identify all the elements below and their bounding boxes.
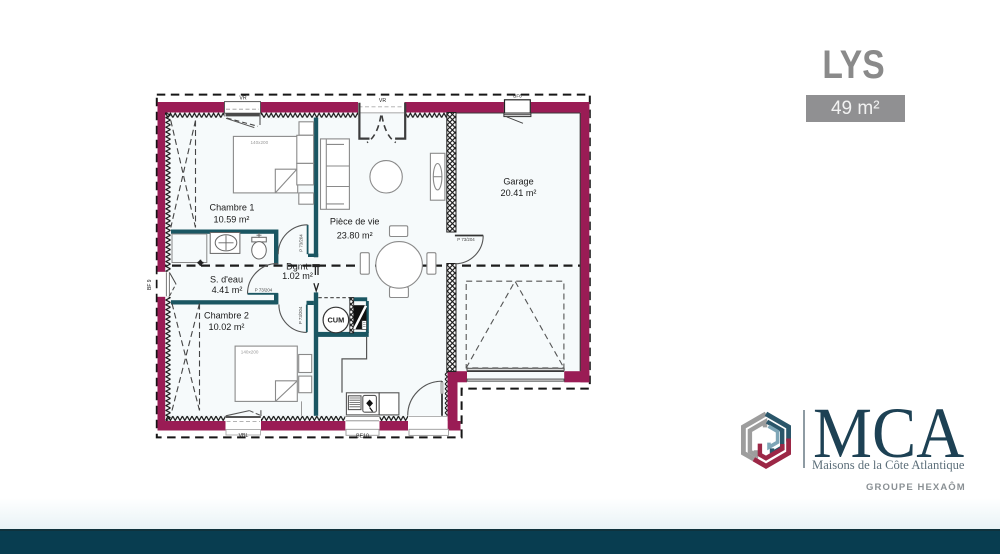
svg-text:BF 9: BF 9	[147, 279, 153, 290]
svg-text:Chambre 2: Chambre 2	[204, 311, 249, 321]
svg-text:VR: VR	[379, 98, 386, 104]
svg-text:10.59 m²: 10.59 m²	[214, 215, 250, 225]
svg-text:4.41 m²: 4.41 m²	[212, 285, 243, 295]
svg-text:1.02 m²: 1.02 m²	[282, 271, 313, 281]
svg-text:Pièce de vie: Pièce de vie	[330, 217, 380, 227]
svg-text:BE10: BE10	[356, 433, 369, 439]
svg-text:VBL: VBL	[239, 433, 249, 439]
svg-text:BF6: BF6	[513, 94, 522, 99]
svg-text:10.02 m²: 10.02 m²	[209, 322, 245, 332]
svg-text:20.41 m²: 20.41 m²	[501, 188, 537, 198]
svg-text:P 73/204: P 73/204	[255, 287, 273, 292]
svg-text:P 73/204: P 73/204	[298, 306, 303, 324]
svg-text:VR: VR	[239, 95, 246, 101]
svg-text:Chambre 1: Chambre 1	[210, 203, 255, 213]
svg-text:23.80 m²: 23.80 m²	[337, 231, 373, 241]
svg-text:140x200: 140x200	[251, 140, 269, 145]
svg-text:140x200: 140x200	[241, 349, 259, 354]
svg-text:Garage: Garage	[503, 177, 533, 187]
svg-text:S. d'eau: S. d'eau	[210, 275, 243, 285]
svg-text:Dgmt: Dgmt	[286, 262, 308, 272]
svg-text:CUM: CUM	[327, 316, 344, 325]
svg-text:P 73/204: P 73/204	[457, 237, 475, 242]
svg-text:P 73/204: P 73/204	[299, 234, 304, 252]
